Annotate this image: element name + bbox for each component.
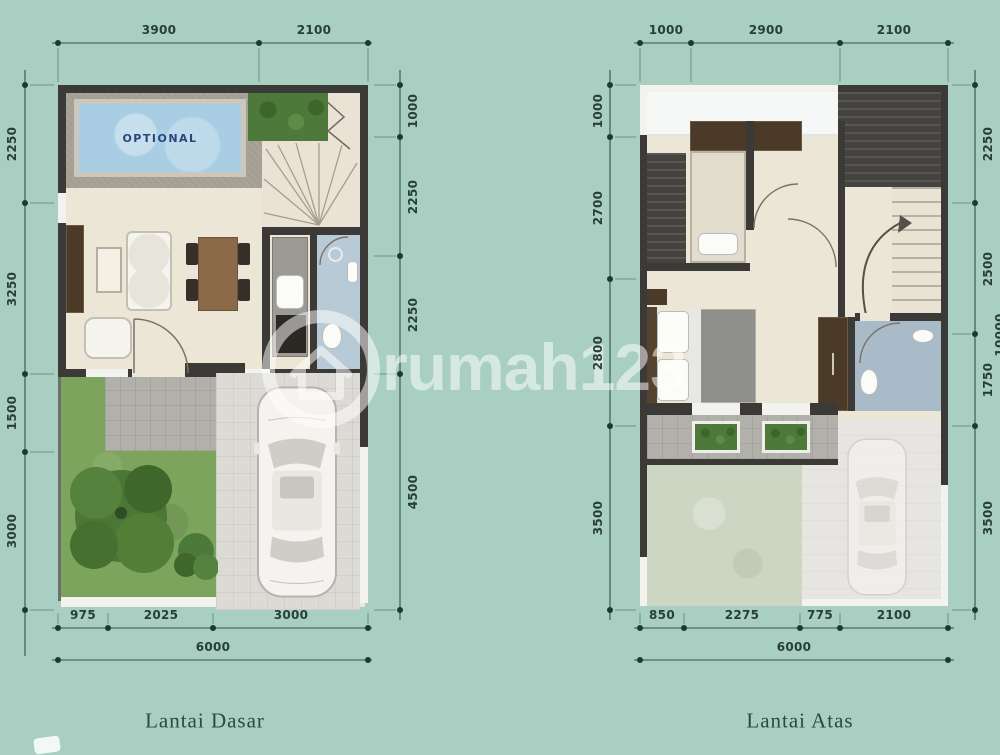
upper-dim-total-height: 10000 xyxy=(993,313,1000,356)
ground-dim-right-1: 1000 xyxy=(406,94,420,129)
ground-caption: Lantai Dasar xyxy=(145,709,265,734)
upper-dim-bottom-2: 2275 xyxy=(725,608,760,622)
ground-left-wall xyxy=(58,85,66,377)
ground-dim-top-2: 2100 xyxy=(297,23,332,37)
ground-top-wall xyxy=(58,85,368,93)
sofa xyxy=(126,231,172,311)
car-faded xyxy=(837,437,917,597)
pool-optional-label: OPTIONAL xyxy=(122,132,197,145)
upper-dim-bottom-3: 775 xyxy=(807,608,833,622)
upper-floor-plan xyxy=(640,85,948,610)
patio-paving xyxy=(105,377,216,451)
swimming-pool: OPTIONAL xyxy=(74,99,246,177)
upper-dim-right-1: 2250 xyxy=(981,127,995,162)
upper-dim-bottom-4: 2100 xyxy=(877,608,912,622)
upper-dim-total-width: 6000 xyxy=(777,640,812,654)
balcony-window xyxy=(762,403,810,415)
tv-console xyxy=(66,225,84,313)
balcony-bottom-wall xyxy=(647,459,838,465)
watermark-text: rumah123 xyxy=(382,334,686,400)
ground-dim-bottom-2: 2025 xyxy=(144,608,179,622)
ground-dim-bottom-1: 975 xyxy=(70,608,96,622)
ground-dim-left-1: 2250 xyxy=(5,127,19,162)
wall-art-frame xyxy=(96,247,122,293)
ground-dim-bottom-3: 3000 xyxy=(274,608,309,622)
balcony-window xyxy=(692,403,740,415)
upper-dim-bottom-1: 850 xyxy=(649,608,675,622)
upper-dim-left-2: 2700 xyxy=(591,191,605,226)
upper-caption: Lantai Atas xyxy=(746,709,853,734)
upper-dim-left-4: 3500 xyxy=(591,501,605,536)
upper-dim-left-1: 1000 xyxy=(591,94,605,129)
ground-dim-total-width: 6000 xyxy=(196,640,231,654)
entry-door-arc xyxy=(128,311,194,377)
upper-top-railing xyxy=(640,85,838,92)
upper-gate xyxy=(802,599,941,606)
corner-watermark-fragment xyxy=(33,735,61,754)
dining-table xyxy=(198,237,238,311)
dining-chair xyxy=(238,279,250,301)
ground-dim-right-4: 4500 xyxy=(406,475,420,510)
garden-view-faded xyxy=(647,464,802,606)
upper-left-post xyxy=(640,457,647,557)
dining-chair xyxy=(186,279,198,301)
upper-right-fence xyxy=(941,485,948,606)
bath-door-arc xyxy=(310,227,360,277)
balcony-planter xyxy=(762,421,810,453)
tree xyxy=(66,441,184,591)
upper-dim-right-2: 2500 xyxy=(981,252,995,287)
upper-left-wall xyxy=(640,135,647,457)
right-fence xyxy=(360,447,368,603)
upper-top-wall xyxy=(838,85,948,92)
upper-dim-top-2: 2900 xyxy=(749,23,784,37)
upper-dim-left-3: 2800 xyxy=(591,336,605,371)
upper-dim-top-1: 1000 xyxy=(649,23,684,37)
upper-left-railing xyxy=(640,85,647,135)
kitchen-sink xyxy=(276,275,304,309)
garden-left-edge xyxy=(58,377,61,601)
upper-dim-right-3: 1750 xyxy=(981,363,995,398)
shrub xyxy=(174,525,218,583)
ground-dim-left-2: 3250 xyxy=(5,272,19,307)
winding-stair-fan xyxy=(262,93,360,233)
dining-chair xyxy=(186,243,198,265)
garden-gate xyxy=(61,597,216,607)
front-window-left xyxy=(86,369,128,377)
upper-left-fence xyxy=(640,557,647,606)
left-wall-window xyxy=(58,193,66,223)
upper-dim-right-4: 3500 xyxy=(981,501,995,536)
armchair xyxy=(84,317,132,359)
ground-dim-right-3: 2250 xyxy=(406,298,420,333)
upper-right-wall xyxy=(941,85,948,485)
ground-dim-left-3: 1500 xyxy=(5,396,19,431)
ground-dim-left-4: 3000 xyxy=(5,514,19,549)
balcony-planter xyxy=(692,421,740,453)
upper-dim-top-3: 2100 xyxy=(877,23,912,37)
ground-dim-top-1: 3900 xyxy=(142,23,177,37)
dining-chair xyxy=(238,243,250,265)
floorplan-canvas: { "watermark": { "text": "rumah123" }, "… xyxy=(0,0,1000,750)
watermark-house-icon xyxy=(262,310,380,428)
ground-dim-right-2: 2250 xyxy=(406,180,420,215)
